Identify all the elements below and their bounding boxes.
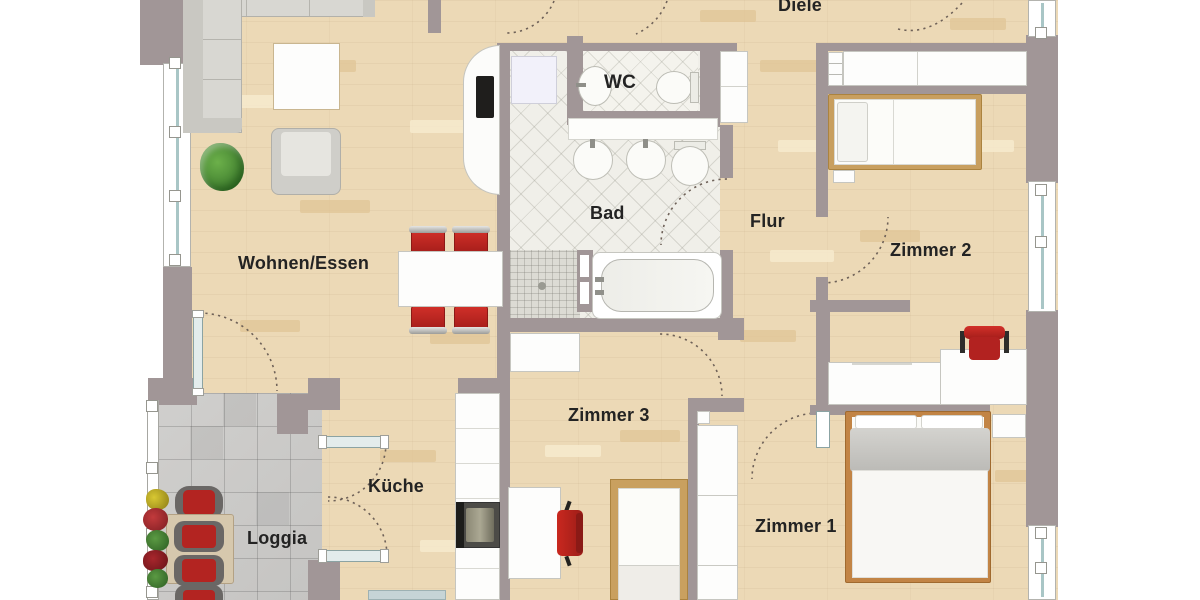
door-cap [318, 435, 327, 449]
sofa-backrest [183, 0, 203, 133]
closet-seam [917, 52, 918, 85]
flower-box [146, 489, 169, 510]
wall [428, 0, 441, 33]
wall [497, 318, 733, 332]
window-handle [1035, 236, 1047, 248]
door-cap [380, 549, 389, 563]
bed-pillow-zimmer1 [921, 415, 983, 429]
bath-sink-faucet [590, 139, 595, 148]
flower-box [147, 569, 168, 588]
sofa-armrest [363, 0, 375, 17]
window-handle [1035, 27, 1047, 39]
shower-niche [580, 282, 589, 304]
loggia-chair-cushion [182, 525, 216, 548]
shower-drain [538, 282, 546, 290]
bathtub-faucet [595, 290, 604, 295]
apartment-floorplan: Diele WC Bad Flur Zimmer 2 Wohnen/Essen … [0, 0, 1200, 600]
room-label-zimmer1: Zimmer 1 [755, 516, 837, 537]
window-handle [1035, 184, 1047, 196]
wall [700, 43, 720, 127]
bed-duvet-seam [893, 100, 894, 164]
plant [200, 143, 244, 191]
desk-chair-backrest [576, 513, 583, 553]
bath-vanity [568, 118, 718, 140]
wall-niche [697, 411, 710, 424]
railing-post [146, 462, 158, 474]
wall [277, 394, 308, 434]
kitchen-counter [455, 393, 500, 600]
kitchen-window [368, 590, 446, 600]
dining-chair-backrest [452, 226, 490, 233]
bed-pillow-zimmer2 [837, 102, 868, 162]
dining-chair-backrest [409, 226, 447, 233]
room-label-zimmer2: Zimmer 2 [890, 240, 972, 261]
wall [1026, 310, 1058, 527]
sideboard-seam [852, 363, 912, 365]
bathtub-basin [601, 259, 714, 312]
shower-niche [580, 255, 589, 277]
wardrobe-zimmer1 [697, 425, 738, 600]
wall [718, 318, 744, 340]
room-label-bad: Bad [590, 203, 625, 224]
wall [1026, 35, 1058, 183]
desk-chair-seat [969, 337, 1000, 360]
flower-box [143, 508, 168, 531]
closet-shelf [828, 52, 843, 86]
wc-sink-faucet [576, 83, 586, 87]
room-label-wohnen-essen: Wohnen/Essen [238, 253, 369, 274]
dining-chair-backrest [409, 327, 447, 334]
window-handle [1035, 562, 1047, 574]
wall [163, 267, 192, 394]
wall [816, 43, 1058, 51]
wc-toilet-tank [690, 72, 699, 103]
railing-post [146, 400, 158, 412]
door-cap [318, 549, 327, 563]
door-leaf-zimmer1 [816, 411, 830, 448]
loggia-door-leaf [193, 313, 203, 393]
dining-table [398, 251, 503, 307]
wall [308, 378, 340, 410]
loggia-french-door [322, 550, 386, 562]
stove-handle [456, 502, 464, 548]
bath-toilet [671, 146, 709, 186]
window-handle [169, 126, 181, 138]
room-label-flur: Flur [750, 211, 785, 232]
bathtub-faucet [595, 277, 604, 282]
loggia-chair-cushion [183, 590, 215, 600]
room-label-diele: Diele [778, 0, 822, 16]
room-label-loggia: Loggia [247, 528, 307, 549]
nightstand-zimmer2 [833, 170, 855, 183]
loggia-chair-cushion [183, 490, 215, 515]
bed-duvet-zimmer1 [852, 470, 988, 578]
room-label-wc: WC [604, 72, 636, 94]
window-handle [169, 57, 181, 69]
bath-cabinet [511, 56, 557, 104]
window-handle [169, 254, 181, 266]
room-label-kueche: Küche [368, 476, 424, 497]
wall [810, 300, 910, 312]
window-handle [169, 190, 181, 202]
armchair-seat [281, 132, 331, 176]
door-cap [192, 310, 204, 318]
wall [816, 43, 828, 217]
wall [308, 560, 340, 600]
bed-blanket-line [619, 565, 679, 600]
door-cap [192, 388, 204, 396]
loggia-chair-cushion [182, 559, 216, 582]
hall-wardrobe [720, 51, 748, 123]
wc-toilet [656, 71, 692, 104]
tv-sideboard [463, 45, 500, 195]
nightstand-zimmer1 [992, 414, 1026, 438]
built-in-closet [843, 51, 1027, 86]
wardrobe-zimmer3 [510, 333, 580, 372]
stove-oven-door [466, 508, 494, 542]
door-cap [380, 435, 389, 449]
bath-sink-faucet [643, 139, 648, 148]
bed-blanket-zimmer1 [850, 428, 990, 472]
wall [828, 85, 1027, 94]
window-handle [1035, 527, 1047, 539]
tv-icon [476, 76, 494, 118]
bed-pillow-zimmer1 [855, 415, 917, 429]
desk-zimmer3 [508, 487, 561, 579]
loggia-french-door [322, 436, 386, 448]
sofa-armrest [183, 118, 242, 133]
dining-chair-backrest [452, 327, 490, 334]
coffee-table [273, 43, 340, 110]
hall-wardrobe-seam [721, 86, 747, 87]
room-label-zimmer3: Zimmer 3 [568, 405, 650, 426]
flower-box [146, 530, 169, 551]
wall [720, 125, 733, 178]
